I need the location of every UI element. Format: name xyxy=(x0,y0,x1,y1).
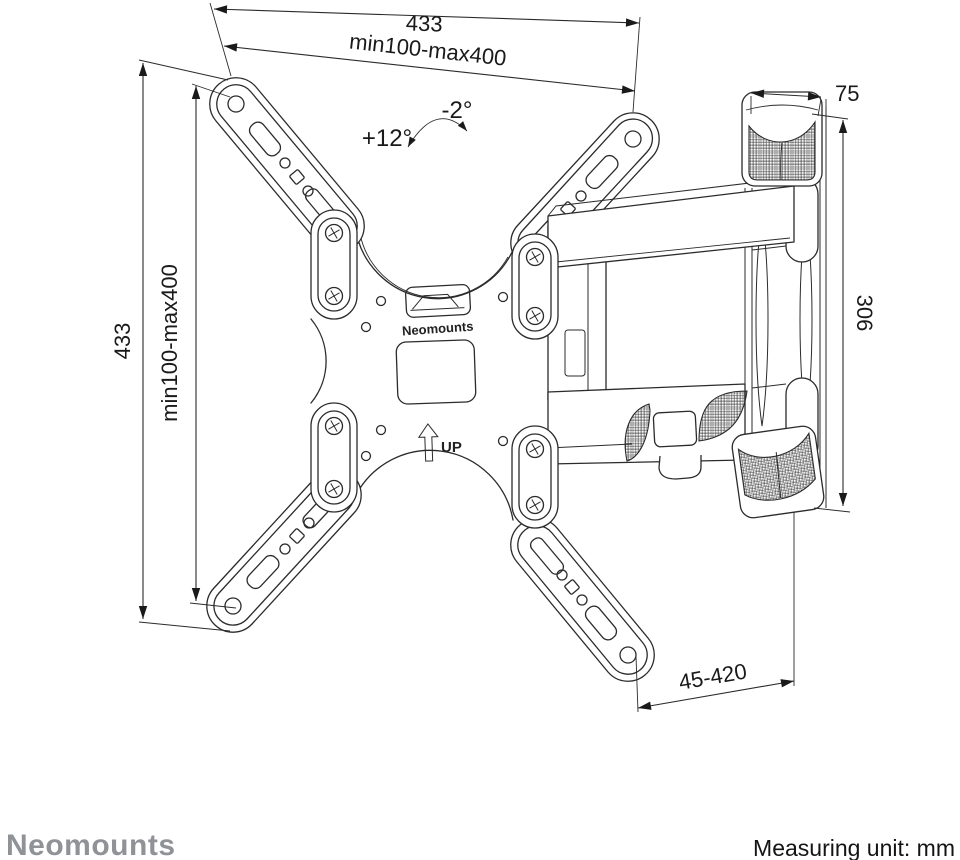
dim-left-vesa: min100-max400 xyxy=(157,264,182,422)
slider-housing-bottom-right xyxy=(512,426,558,528)
screw xyxy=(326,418,343,435)
tilt-handle xyxy=(659,455,701,479)
dim-top-total: 433 xyxy=(405,10,443,36)
screw xyxy=(527,249,544,266)
tilt-angle-annotation: +12° -2° xyxy=(362,97,473,152)
plate-top-valley-edge xyxy=(355,225,513,299)
plate-left-edge xyxy=(311,319,326,403)
screw xyxy=(326,288,343,305)
dimension-extension-range: 45-420 xyxy=(636,512,795,712)
screw xyxy=(527,497,544,514)
footer: Neomounts Measuring unit: mm xyxy=(6,829,955,860)
angle-tilt-down-label: -2° xyxy=(442,97,473,124)
dim-left-total: 433 xyxy=(110,323,135,360)
measuring-unit-label: Measuring unit: mm xyxy=(753,835,955,860)
tv-mount-technical-drawing: Neomounts UP xyxy=(0,0,960,860)
dimension-left-vesa: min100-max400 xyxy=(157,84,236,608)
plate-brand-label: Neomounts xyxy=(402,319,474,339)
brand-logo: Neomounts xyxy=(6,829,176,860)
slider-housing-top-right xyxy=(512,234,558,339)
dim-wallplate-height: 306 xyxy=(852,295,877,332)
screw xyxy=(527,308,544,325)
wallplate-cover-top xyxy=(742,92,822,186)
plate-top-valley-inner-edge xyxy=(360,234,508,298)
label-recess xyxy=(396,340,476,405)
dimension-top-vesa: min100-max400 xyxy=(224,28,636,95)
slider-housing-top-left xyxy=(311,210,357,319)
wallplate-cover-bottom xyxy=(731,425,826,520)
dim-wallplate-width: 75 xyxy=(835,81,859,106)
screw xyxy=(326,481,343,498)
technical-drawing-page: Neomounts UP xyxy=(0,0,960,860)
screw xyxy=(326,225,343,242)
plate-bottom-edge xyxy=(355,450,513,520)
dim-extension-range: 45-420 xyxy=(677,658,749,694)
slider-housing-bottom-left xyxy=(311,403,357,512)
screw xyxy=(527,441,544,458)
up-label: UP xyxy=(441,439,462,456)
angle-tilt-up-label: +12° xyxy=(362,125,412,152)
up-arrow-icon xyxy=(418,424,438,462)
vesa-arm-bottom-right xyxy=(511,519,654,681)
tilt-knob-face xyxy=(653,411,697,447)
handle-cutout xyxy=(405,284,470,317)
